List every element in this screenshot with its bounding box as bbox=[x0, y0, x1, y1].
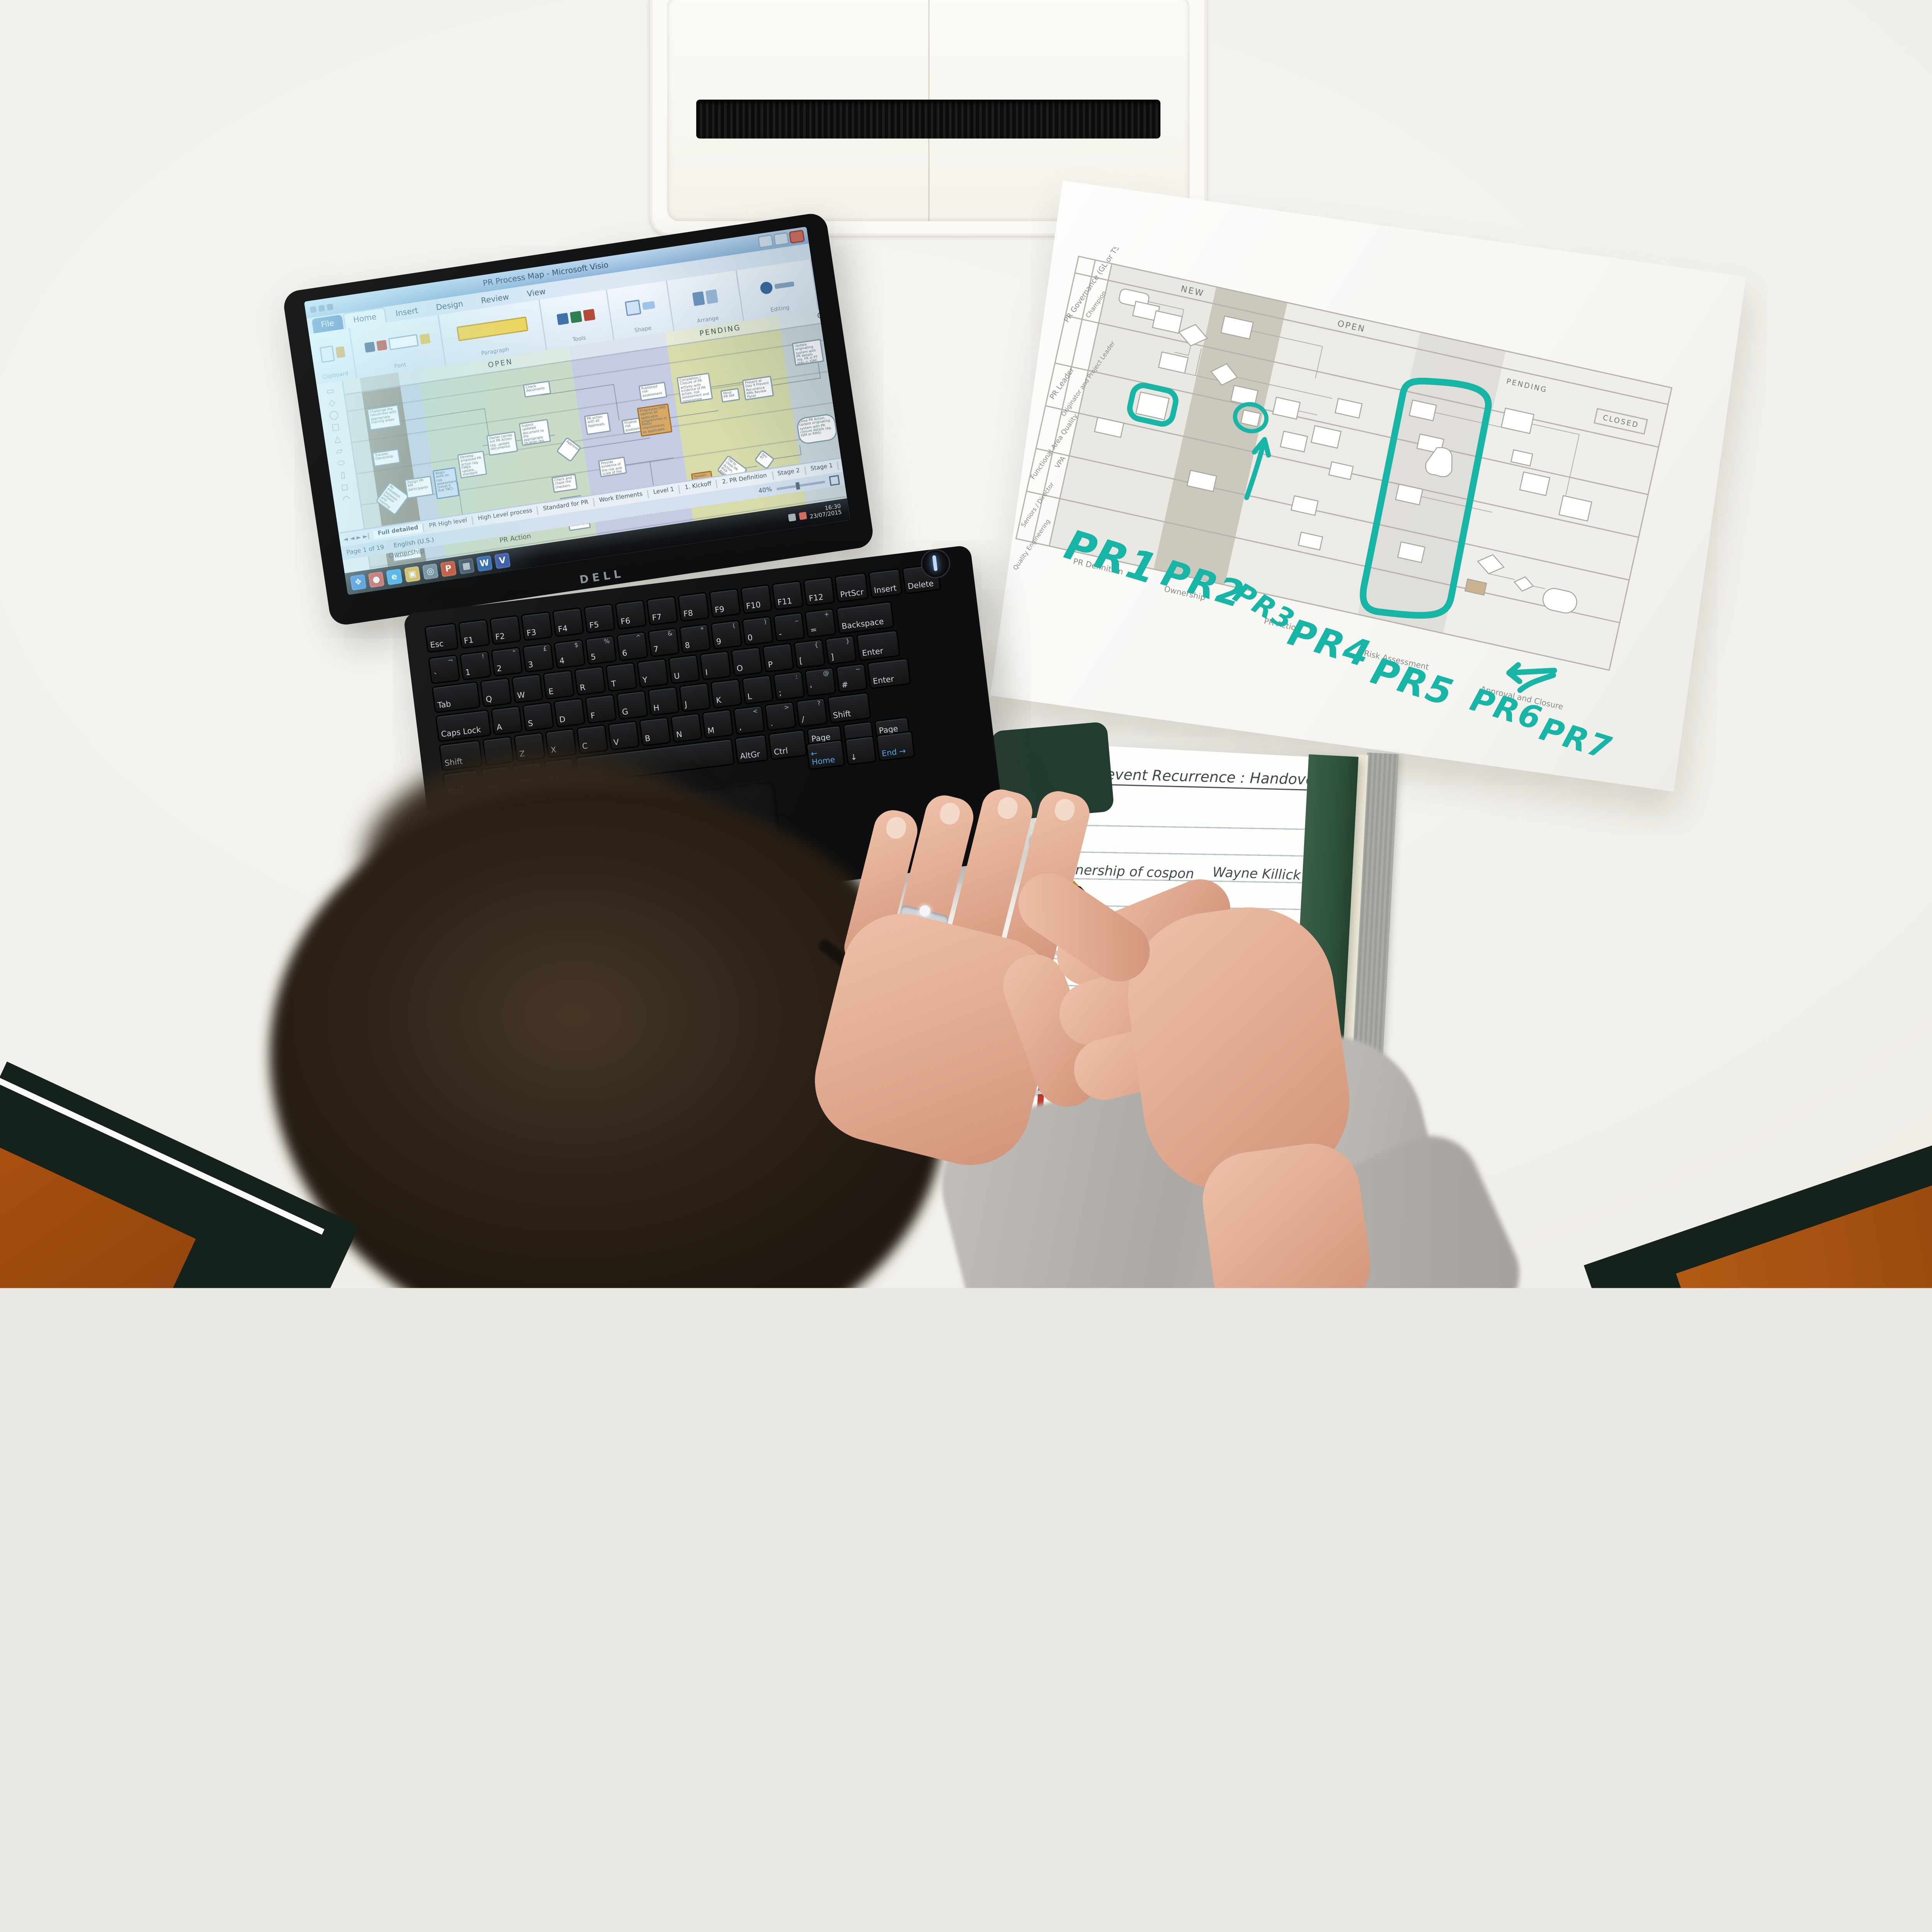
key-space: ?/ bbox=[796, 697, 828, 728]
key-F1: F1 bbox=[458, 619, 490, 649]
key-space: _- bbox=[773, 612, 805, 642]
quick-access-toolbar[interactable] bbox=[310, 303, 333, 312]
stencil-shape[interactable]: ◇ bbox=[328, 399, 336, 408]
key-4: $4 bbox=[553, 639, 585, 669]
key-N: N bbox=[670, 713, 702, 743]
group-label: Font bbox=[394, 363, 407, 371]
ribbon-group-arrange: Arrange bbox=[667, 270, 744, 331]
key-A: A bbox=[491, 705, 523, 735]
sheet-nav-arrows[interactable]: ◄ ◄ ► ►| bbox=[339, 532, 374, 544]
flow-shape[interactable]: Owner carries out PR Action (eg. update … bbox=[486, 431, 518, 456]
key-J: J bbox=[679, 682, 711, 713]
stencil-shape[interactable]: ◯ bbox=[329, 411, 340, 420]
stencil-shape[interactable]: ◻ bbox=[341, 483, 349, 492]
flow-shape[interactable]: PR action with all Approvals bbox=[584, 412, 611, 435]
key-I: I bbox=[699, 650, 731, 680]
key-S: S bbox=[522, 701, 554, 731]
key-F4: F4 bbox=[552, 607, 584, 637]
fit-page-icon[interactable] bbox=[829, 474, 840, 486]
flow-shape[interactable]: Submit updated document to the appropria… bbox=[519, 419, 551, 446]
photo-icon[interactable]: ▦ bbox=[458, 558, 475, 575]
folder-icon[interactable]: ▣ bbox=[404, 566, 421, 583]
key-Tab: Tab bbox=[432, 681, 481, 713]
close-button[interactable] bbox=[789, 230, 805, 244]
flow-shape[interactable]: Progresses RMS against all applicable pr… bbox=[637, 403, 672, 437]
grommet-brush-slot bbox=[696, 100, 1160, 139]
key-F6: F6 bbox=[615, 600, 647, 630]
stencil-shape[interactable]: △ bbox=[334, 435, 342, 444]
internet-explorer-icon[interactable]: e bbox=[386, 569, 403, 585]
stencil-shape[interactable]: ▱ bbox=[335, 447, 343, 456]
ribbon-group-clipboard: Clipboard bbox=[309, 328, 357, 384]
visio-icon[interactable]: V bbox=[494, 553, 511, 569]
key-H: H bbox=[648, 686, 680, 716]
key-space: += bbox=[804, 608, 837, 638]
taskbar-clock: 16:30 23/07/2015 bbox=[809, 503, 845, 521]
fingernail bbox=[995, 795, 1020, 821]
key-F2: F2 bbox=[489, 615, 521, 645]
flow-shape[interactable]: Develop proposed PR action (eg. FMEA upd… bbox=[457, 451, 487, 478]
key-Esc: Esc bbox=[424, 622, 459, 653]
key-6: ^6 bbox=[616, 631, 648, 661]
key-F10: F10 bbox=[740, 584, 772, 614]
key-K: K bbox=[710, 679, 742, 709]
zoom-level: 40% bbox=[758, 486, 772, 495]
stencil-shape[interactable]: ◠ bbox=[342, 495, 351, 505]
key-G: G bbox=[616, 690, 648, 720]
flow-shape[interactable]: Begin work on risk assessment (Level 4 d… bbox=[432, 467, 459, 499]
key-space: ¬` bbox=[428, 654, 460, 684]
word-icon[interactable]: W bbox=[476, 555, 493, 572]
key-space: <, bbox=[733, 705, 765, 735]
maximize-button[interactable] bbox=[773, 232, 789, 246]
key-F5: F5 bbox=[583, 604, 616, 634]
system-tray: 16:30 23/07/2015 bbox=[787, 503, 845, 524]
key-F8: F8 bbox=[677, 592, 709, 622]
key-F3: F3 bbox=[521, 611, 553, 641]
sheet-tab[interactable]: Level 1 bbox=[648, 485, 681, 498]
key-1: !1 bbox=[459, 650, 492, 680]
key-L: L bbox=[742, 675, 774, 705]
key-Q: Q bbox=[480, 677, 512, 707]
key-Y: Y bbox=[637, 658, 669, 688]
key-Backspace: Backspace bbox=[836, 601, 895, 634]
power-led bbox=[932, 555, 937, 571]
flow-shape[interactable]: Present at Day 9 Prevent Recurrence RMs … bbox=[742, 376, 774, 400]
key-5: %5 bbox=[585, 635, 617, 665]
key-W: W bbox=[511, 673, 543, 704]
laptop-lid: PR Process Map - Microsoft Visio File Ho… bbox=[282, 212, 875, 627]
key-F12: F12 bbox=[803, 577, 835, 607]
key-C: C bbox=[576, 724, 608, 754]
key-U: U bbox=[668, 654, 700, 684]
group-label: Shape bbox=[634, 326, 652, 335]
key-space: :; bbox=[773, 671, 805, 701]
key-Insert: Insert bbox=[868, 568, 903, 599]
tray-icon[interactable] bbox=[787, 514, 796, 522]
key-B: B bbox=[639, 716, 671, 747]
media-icon[interactable]: ◎ bbox=[422, 563, 439, 580]
ribbon-group-shape: Shape bbox=[607, 281, 675, 340]
phase-closed: CLOSED bbox=[817, 307, 850, 321]
flow-shape[interactable]: Challenge the robustness with appropriat… bbox=[367, 405, 401, 431]
key-AltGr: AltGr bbox=[734, 734, 769, 764]
fingernail bbox=[1053, 797, 1077, 823]
chrome-icon[interactable]: ● bbox=[368, 571, 384, 588]
key-E: E bbox=[543, 670, 575, 700]
key-space: ~# bbox=[835, 663, 867, 693]
minimize-button[interactable] bbox=[757, 234, 774, 248]
key-D: D bbox=[553, 698, 585, 728]
right-hand bbox=[1039, 831, 1416, 1288]
key-PrtScr: PrtScr bbox=[834, 572, 869, 603]
tray-icon[interactable] bbox=[798, 512, 806, 520]
key-3: £3 bbox=[522, 643, 554, 673]
key-Enter: Enter bbox=[867, 658, 912, 689]
stencil-shape[interactable]: □ bbox=[331, 423, 340, 433]
key-O: O bbox=[731, 646, 763, 677]
key-9: (9 bbox=[710, 620, 742, 650]
group-label: Editing bbox=[770, 305, 790, 314]
key-8: *8 bbox=[679, 624, 711, 654]
key-P: P bbox=[762, 643, 794, 673]
key-space: }] bbox=[825, 635, 857, 665]
fingernail bbox=[884, 815, 908, 841]
key-Home: ← Home bbox=[806, 739, 845, 770]
flow-shape[interactable]: Assign PR RM participants bbox=[404, 476, 434, 499]
ribbon-group-tools: Tools bbox=[540, 290, 615, 350]
zoom-slider[interactable] bbox=[777, 480, 825, 490]
key-M: M bbox=[702, 709, 734, 739]
key-0: )0 bbox=[742, 616, 774, 646]
key-space: >. bbox=[764, 701, 796, 731]
highlighted-dropdown[interactable] bbox=[456, 316, 528, 341]
laptop-screen: PR Process Map - Microsoft Visio File Ho… bbox=[304, 227, 850, 595]
key-Shift: Shift bbox=[827, 692, 871, 724]
flow-shape[interactable]: Completion / Closure of PR activity with… bbox=[677, 372, 713, 404]
key-F11: F11 bbox=[772, 580, 804, 611]
key-V: V bbox=[607, 720, 639, 750]
key-CapsLock: Caps Lock bbox=[435, 709, 492, 742]
key-Enter: Enter bbox=[856, 629, 901, 661]
key-Ctrl: Ctrl bbox=[768, 729, 807, 760]
key-F7: F7 bbox=[646, 596, 678, 626]
group-label: Tools bbox=[572, 336, 587, 344]
key-space: @' bbox=[804, 667, 836, 697]
stencil-shape[interactable]: ▯ bbox=[340, 471, 346, 481]
powerpoint-icon[interactable]: P bbox=[440, 561, 457, 577]
key-F9: F9 bbox=[709, 588, 741, 618]
stencil-shape[interactable]: ▭ bbox=[326, 387, 335, 396]
key-space: {[ bbox=[793, 639, 825, 669]
flow-shape[interactable]: Update originating system with PR detail… bbox=[792, 339, 824, 366]
stencil-shape[interactable]: ⬭ bbox=[337, 459, 345, 469]
start-button[interactable]: ❖ bbox=[350, 574, 367, 591]
key-2: "2 bbox=[491, 646, 523, 677]
desk-scene: PR Governance (GL or TS) Champion PR Lea… bbox=[0, 0, 1932, 1288]
key-R: R bbox=[574, 666, 606, 696]
fingernail bbox=[938, 801, 962, 827]
key-T: T bbox=[605, 662, 638, 692]
key-7: &7 bbox=[648, 628, 680, 658]
key-F: F bbox=[585, 694, 617, 724]
